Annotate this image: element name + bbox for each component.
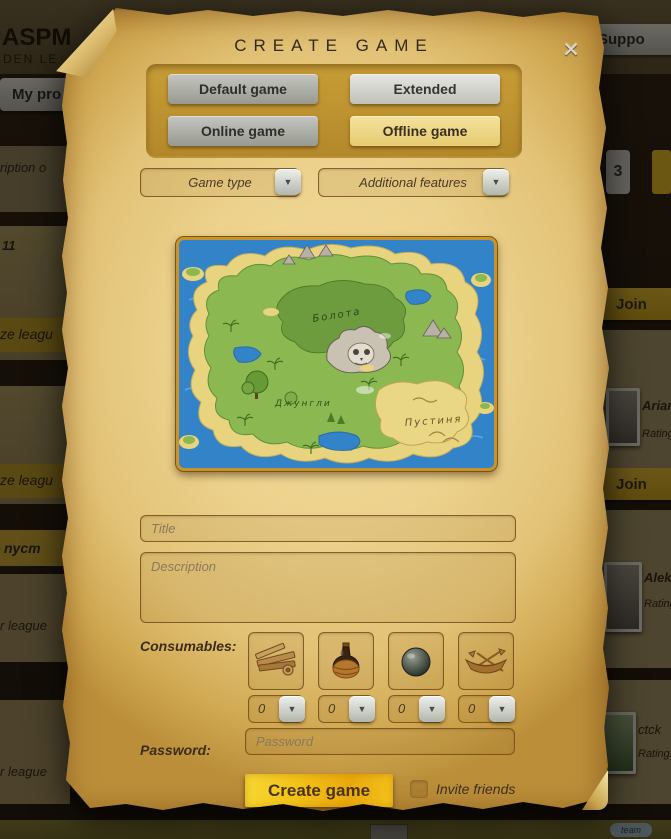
password-input[interactable]: [245, 728, 515, 755]
password-label: Password:: [140, 742, 211, 758]
extended-button[interactable]: Extended: [350, 74, 500, 104]
offline-game-button[interactable]: Offline game: [350, 116, 500, 146]
planks-qty-stepper[interactable]: 0 ▼: [248, 695, 304, 723]
consumable-planks[interactable]: [248, 632, 304, 690]
bottle-icon: [323, 641, 369, 681]
create-game-dialog: CREATE GAME ✕ Default game Extended Onli…: [58, 8, 610, 818]
boat-qty-value: 0: [468, 696, 475, 722]
boat-qty-stepper[interactable]: 0 ▼: [458, 695, 514, 723]
planks-qty-value: 0: [258, 696, 265, 722]
game-mode-panel: Default game Extended Online game Offlin…: [146, 64, 522, 158]
bottle-qty-stepper[interactable]: 0 ▼: [318, 695, 374, 723]
chevron-down-icon[interactable]: ▼: [489, 696, 515, 722]
map-region-jungle: Джунгли: [274, 399, 332, 409]
additional-features-label: Additional features: [319, 169, 507, 196]
default-game-button[interactable]: Default game: [168, 74, 318, 104]
cannonball-qty-stepper[interactable]: 0 ▼: [388, 695, 444, 723]
cannonball-icon: [393, 641, 439, 681]
chevron-down-icon[interactable]: ▼: [419, 696, 445, 722]
online-game-button[interactable]: Online game: [168, 116, 318, 146]
dialog-title: CREATE GAME: [58, 36, 610, 56]
consumables-label: Consumables:: [140, 638, 236, 654]
consumable-cannonball[interactable]: [388, 632, 444, 690]
app-screen: ASPM DEN LE My pro Suppo ription o 11 ze…: [0, 0, 671, 839]
map-preview[interactable]: Болота Пустиня: [176, 237, 497, 471]
invite-friends-label: Invite friends: [436, 781, 515, 797]
game-type-dropdown[interactable]: Game type ▼: [140, 168, 300, 197]
close-icon[interactable]: ✕: [558, 38, 584, 64]
consumable-boat[interactable]: [458, 632, 514, 690]
chevron-down-icon[interactable]: ▼: [275, 169, 301, 195]
map-image: Болота Пустиня: [179, 240, 494, 468]
create-game-button[interactable]: Create game: [245, 774, 393, 807]
description-input[interactable]: [140, 552, 516, 623]
boat-icon: [463, 641, 509, 681]
invite-friends-checkbox[interactable]: [410, 780, 428, 798]
cannonball-qty-value: 0: [398, 696, 405, 722]
chevron-down-icon[interactable]: ▼: [483, 169, 509, 195]
additional-features-dropdown[interactable]: Additional features ▼: [318, 168, 508, 197]
chevron-down-icon[interactable]: ▼: [349, 696, 375, 722]
planks-icon: [253, 641, 299, 681]
parchment: CREATE GAME ✕ Default game Extended Onli…: [58, 8, 610, 818]
chevron-down-icon[interactable]: ▼: [279, 696, 305, 722]
consumable-bottle[interactable]: [318, 632, 374, 690]
bottle-qty-value: 0: [328, 696, 335, 722]
title-input[interactable]: [140, 515, 516, 542]
